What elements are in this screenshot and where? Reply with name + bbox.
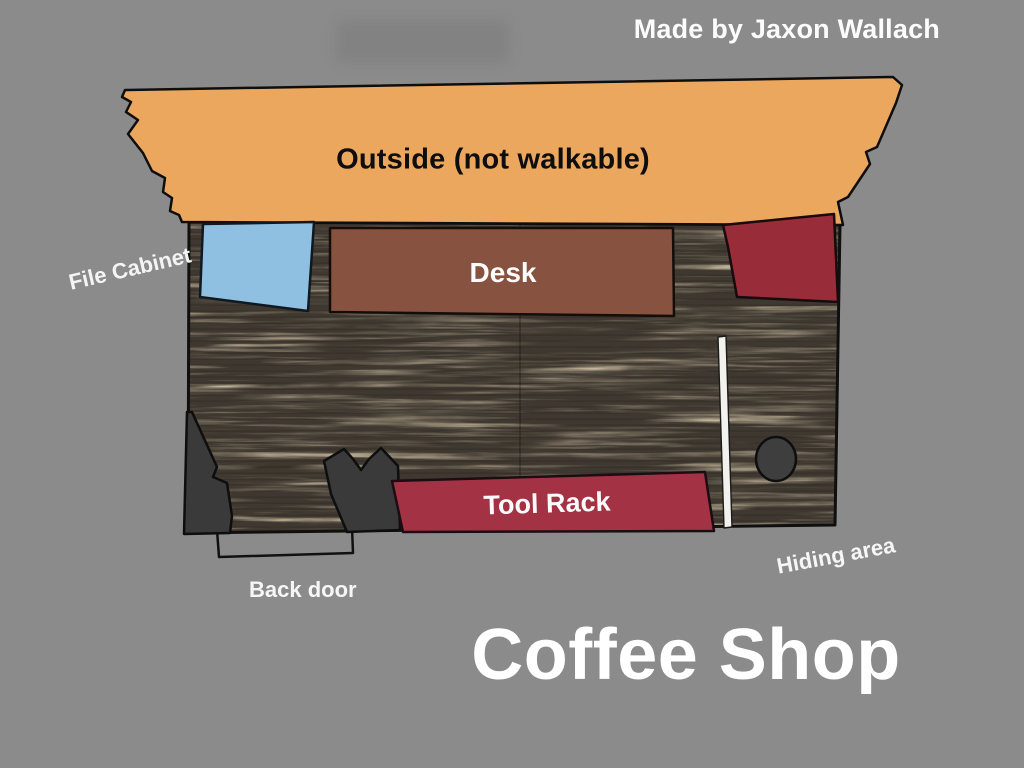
outside-label: Outside (not walkable): [336, 144, 650, 177]
tool-rack-label: Tool Rack: [483, 487, 611, 522]
file-cabinet-area: [200, 222, 314, 311]
credit-text: Made by Jaxon Wallach: [634, 14, 940, 45]
hiding-circle: [756, 437, 796, 481]
back-door-label: Back door: [249, 577, 357, 603]
desk-label: Desk: [470, 257, 537, 289]
corner-shelf-area: [723, 214, 838, 302]
page-title: Coffee Shop: [471, 614, 900, 696]
coffee-shop-map: Made by Jaxon Wallach Outside (not walka…: [0, 0, 1024, 768]
